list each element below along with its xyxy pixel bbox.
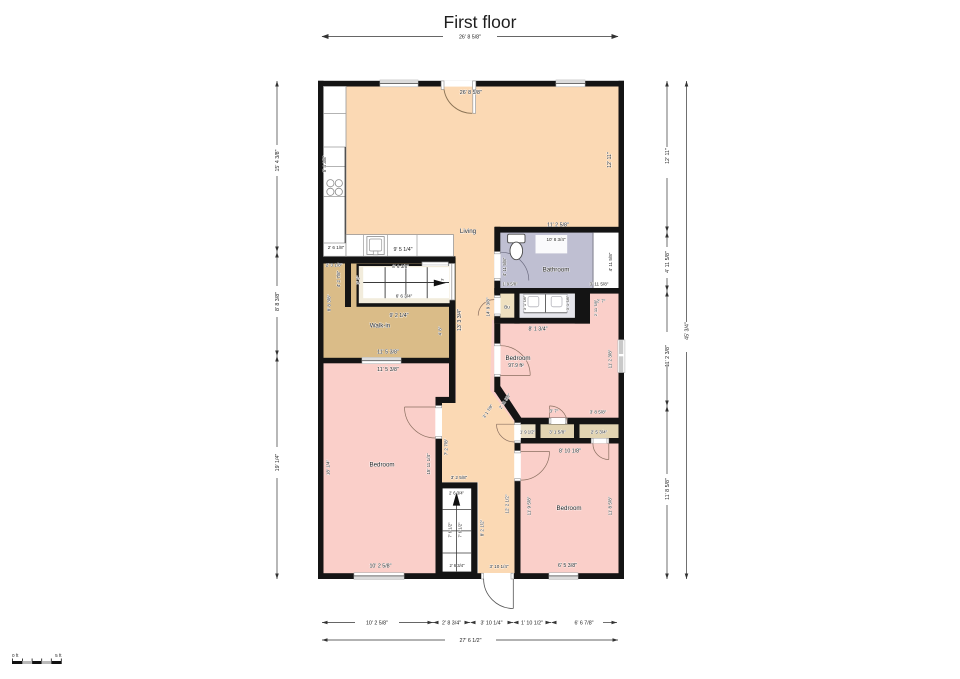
svg-text:2' 11 7/8": 2' 11 7/8": [593, 299, 598, 316]
svg-text:7' 6 1/2": 7' 6 1/2": [448, 522, 453, 538]
svg-text:2' 6 3/4": 2' 6 3/4": [449, 563, 465, 568]
svg-text:4' 11 5/8": 4' 11 5/8": [502, 257, 507, 276]
svg-text:12' 11": 12' 11": [607, 152, 613, 168]
svg-text:11' 2 3/8": 11' 2 3/8": [608, 349, 613, 368]
svg-text:11' 5 3/8": 11' 5 3/8": [377, 350, 399, 356]
svg-text:11' 9 5/8": 11' 9 5/8": [527, 496, 532, 515]
svg-text:12' 2 1/2": 12' 2 1/2": [505, 494, 510, 513]
svg-text:Bedroom: Bedroom: [556, 505, 581, 512]
svg-text:5' 4 3/8": 5' 4 3/8": [322, 155, 327, 172]
svg-text:3' 1 7/8": 3' 1 7/8": [522, 295, 527, 310]
svg-text:8' 8 3/8": 8' 8 3/8": [327, 294, 332, 311]
svg-text:4' 11 5/8": 4' 11 5/8": [665, 251, 671, 273]
svg-text:Living: Living: [460, 228, 477, 235]
svg-text:4' 2 7/8": 4' 2 7/8": [336, 270, 341, 287]
svg-text:10' 8 3/4": 10' 8 3/4": [546, 237, 565, 242]
svg-text:13' 3 3/4": 13' 3 3/4": [457, 309, 463, 331]
svg-text:3' 10 1/4": 3' 10 1/4": [480, 621, 502, 627]
svg-text:3' 10 1/4": 3' 10 1/4": [489, 564, 508, 569]
svg-text:15' 4 3/8": 15' 4 3/8": [275, 149, 281, 171]
svg-text:5 ft: 5 ft: [55, 653, 62, 658]
svg-text:2' 6 3/4": 2' 6 3/4": [449, 491, 465, 496]
svg-text:3': 3': [441, 278, 445, 281]
svg-text:8' 8 3/8": 8' 8 3/8": [275, 292, 281, 311]
svg-text:10' 2 5/8": 10' 2 5/8": [369, 564, 391, 570]
svg-text:6' 6 3/4": 6' 6 3/4": [396, 294, 413, 299]
svg-text:2' 5 3/4": 2' 5 3/4": [591, 430, 608, 435]
svg-text:First floor: First floor: [444, 12, 517, 32]
svg-text:12' 11": 12' 11": [665, 148, 671, 164]
svg-text:2' 3 1/8": 2' 3 1/8": [326, 263, 343, 268]
svg-text:3' 1 7/8": 3' 1 7/8": [565, 295, 570, 310]
svg-text:3' 7": 3' 7": [550, 409, 559, 414]
svg-text:0 ft: 0 ft: [12, 653, 19, 658]
svg-text:Bedroom: Bedroom: [369, 462, 394, 469]
svg-text:1' 9 1/2": 1' 9 1/2": [520, 430, 536, 435]
svg-text:4' 8": 4' 8": [438, 326, 443, 335]
svg-text:3' 11 5/8": 3' 11 5/8": [590, 281, 609, 286]
svg-text:11' 5 3/8": 11' 5 3/8": [377, 367, 399, 373]
svg-text:7' 2 7/8": 7' 2 7/8": [444, 438, 449, 455]
svg-text:10' 2 5/8": 10' 2 5/8": [366, 621, 388, 627]
svg-text:6' 6 7/8": 6' 6 7/8": [574, 621, 593, 627]
svg-text:2' 8 3/4": 2' 8 3/4": [442, 621, 461, 627]
svg-text:14' 9 3/8": 14' 9 3/8": [486, 297, 491, 316]
svg-text:9' 5 1/4": 9' 5 1/4": [393, 247, 412, 253]
svg-text:3' 5": 3' 5": [356, 275, 361, 284]
svg-text:26' 8 5/8": 26' 8 5/8": [459, 35, 481, 41]
svg-text:6' 5 3/8": 6' 5 3/8": [558, 563, 577, 569]
svg-text:7' 6 1/2": 7' 6 1/2": [458, 522, 463, 538]
svg-text:8' 1 3/4": 8' 1 3/4": [528, 327, 547, 333]
svg-text:26' 8 5/8": 26' 8 5/8": [460, 90, 482, 96]
svg-text:3' 8 5/8": 3' 8 5/8": [590, 410, 607, 415]
svg-text:8' 10 1/8": 8' 10 1/8": [559, 449, 581, 455]
svg-text:Bu: Bu: [504, 305, 510, 310]
svg-text:8' 2 1/2": 8' 2 1/2": [480, 519, 485, 536]
svg-text:11' 8 5/8": 11' 8 5/8": [665, 478, 671, 500]
svg-text:Walk-in: Walk-in: [370, 323, 391, 330]
svg-text:11' 2 5/8": 11' 2 5/8": [547, 223, 569, 229]
svg-text:2' 6 1/8": 2' 6 1/8": [328, 245, 345, 250]
svg-text:15' 11 1/4": 15' 11 1/4": [426, 453, 431, 475]
svg-text:1' 10 1/2": 1' 10 1/2": [521, 621, 543, 627]
svg-text:1' 9 5/8": 1' 9 5/8": [502, 281, 518, 286]
svg-text:Bathroom: Bathroom: [543, 267, 570, 274]
svg-text:27' 6 1/2": 27' 6 1/2": [459, 638, 481, 644]
svg-text:97.9 ft²: 97.9 ft²: [508, 363, 524, 369]
svg-text:11' 2 3/8": 11' 2 3/8": [665, 345, 671, 367]
svg-text:3' 2 5/8": 3' 2 5/8": [451, 475, 468, 480]
svg-text:3' 1 5/8": 3' 1 5/8": [549, 430, 566, 435]
svg-text:4' 11 5/8": 4' 11 5/8": [608, 252, 613, 271]
svg-text:18' 1/4": 18' 1/4": [326, 459, 331, 475]
svg-text:9' 2 1/4": 9' 2 1/4": [389, 313, 408, 319]
svg-text:8' 6 3/8": 8' 6 3/8": [392, 264, 409, 269]
svg-text:45' 3/4": 45' 3/4": [685, 322, 691, 340]
svg-text:11' 8 5/8": 11' 8 5/8": [608, 496, 613, 515]
svg-text:Bedroom: Bedroom: [505, 355, 530, 362]
svg-text:19' 1/4": 19' 1/4": [275, 454, 281, 472]
